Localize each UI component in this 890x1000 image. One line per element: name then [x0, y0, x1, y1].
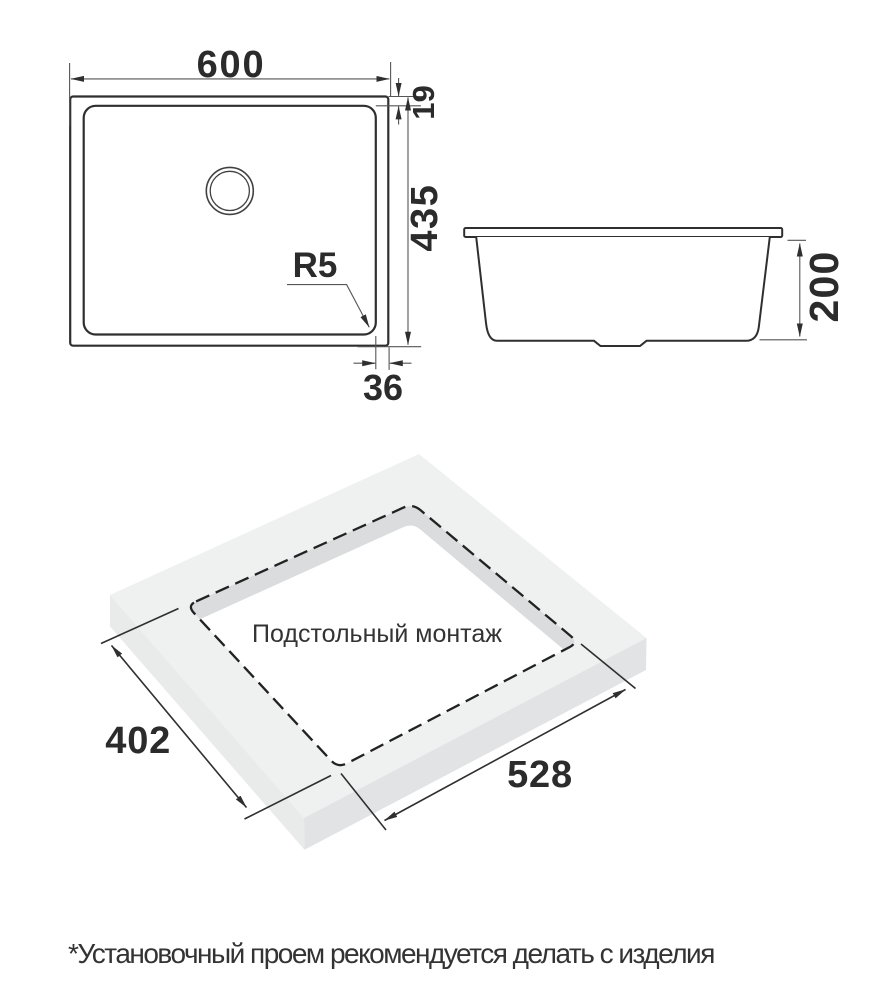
svg-text:Подстольный монтаж: Подстольный монтаж: [252, 620, 502, 648]
svg-text:19: 19: [406, 85, 441, 119]
svg-text:402: 402: [105, 720, 171, 762]
svg-text:36: 36: [363, 367, 403, 408]
svg-text:*Установочный проем рекомендуе: *Установочный проем рекомендуется делать…: [68, 938, 714, 969]
svg-text:435: 435: [404, 184, 446, 252]
svg-text:R5: R5: [293, 246, 338, 285]
svg-text:200: 200: [801, 250, 847, 322]
svg-text:528: 528: [507, 754, 573, 796]
svg-text:600: 600: [197, 44, 266, 86]
